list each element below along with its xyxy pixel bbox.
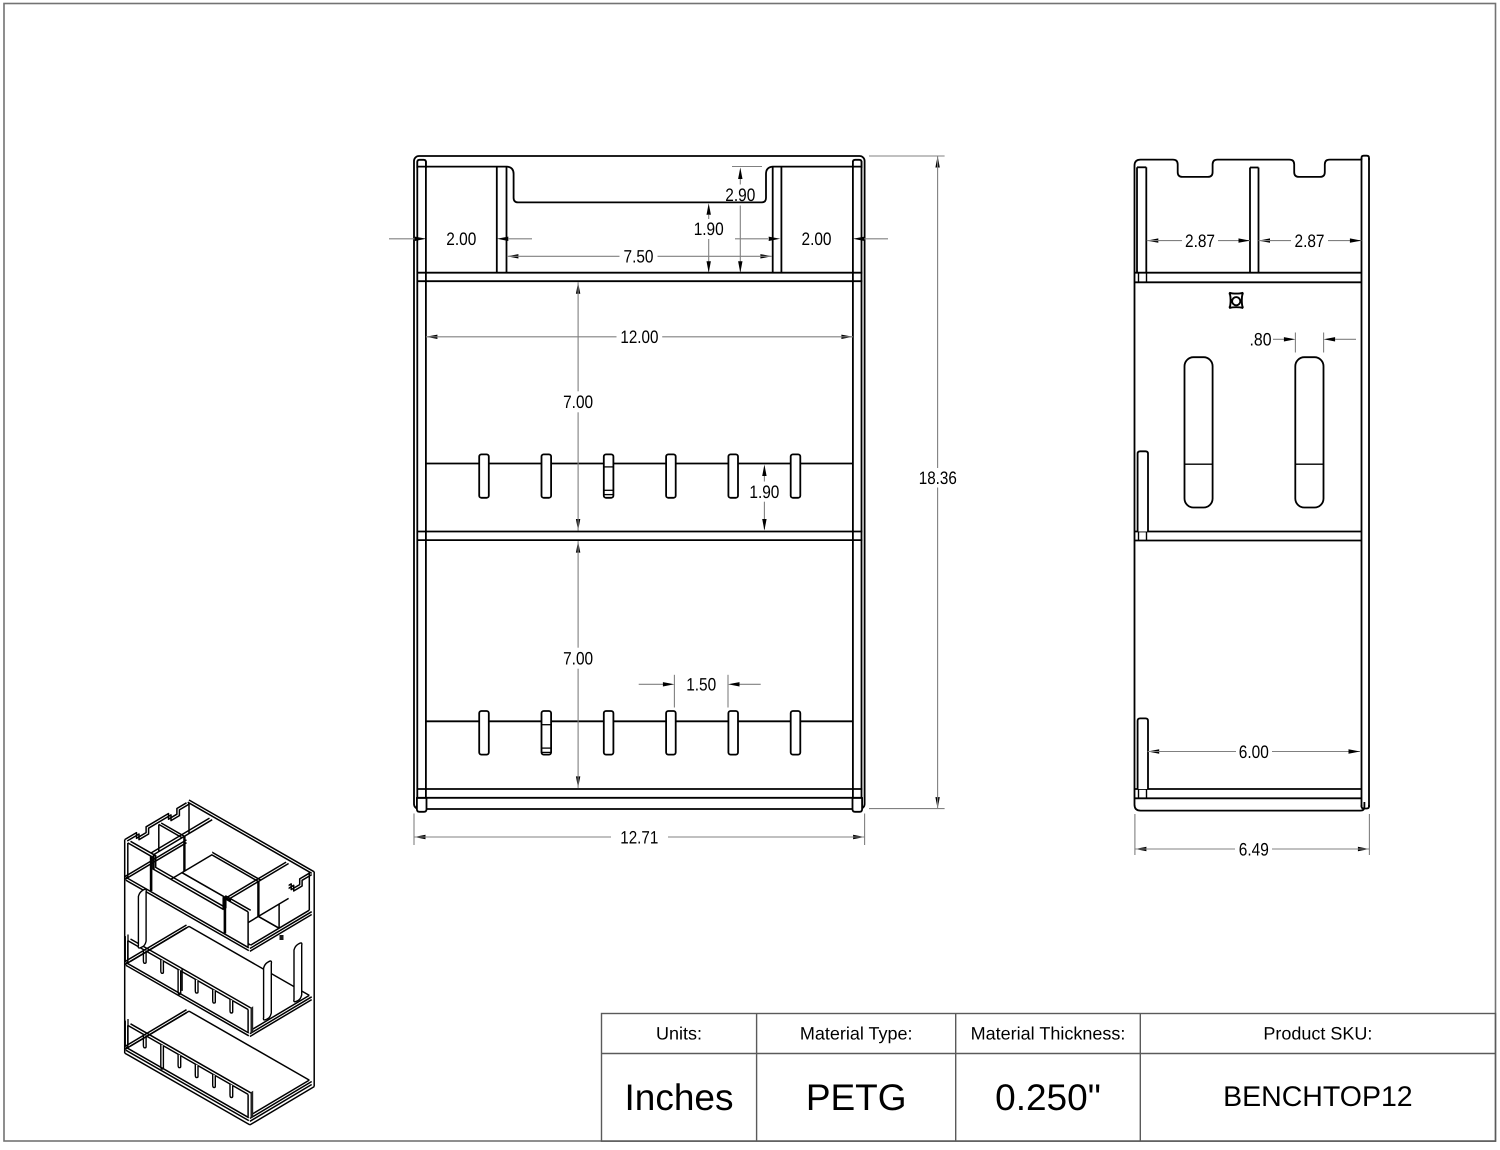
svg-text:Inches: Inches xyxy=(624,1077,733,1118)
svg-text:2.90: 2.90 xyxy=(725,185,755,205)
svg-text:7.00: 7.00 xyxy=(563,392,593,412)
svg-text:0.250": 0.250" xyxy=(995,1077,1101,1118)
svg-text:PETG: PETG xyxy=(806,1077,907,1118)
svg-text:Product SKU:: Product SKU: xyxy=(1263,1024,1372,1044)
svg-text:7.00: 7.00 xyxy=(563,648,593,668)
svg-text:Units:: Units: xyxy=(656,1024,702,1044)
svg-text:1.50: 1.50 xyxy=(686,675,716,695)
svg-text:2.00: 2.00 xyxy=(446,229,476,249)
svg-text:12.00: 12.00 xyxy=(620,327,658,347)
svg-text:12.71: 12.71 xyxy=(620,827,658,847)
svg-text:Material Thickness:: Material Thickness: xyxy=(971,1024,1126,1044)
svg-text:.80: .80 xyxy=(1250,330,1272,350)
svg-text:2.00: 2.00 xyxy=(802,229,832,249)
svg-text:2.87: 2.87 xyxy=(1185,231,1215,251)
svg-text:BENCHTOP12: BENCHTOP12 xyxy=(1223,1081,1413,1113)
svg-text:6.49: 6.49 xyxy=(1239,839,1269,859)
svg-text:1.90: 1.90 xyxy=(749,482,779,502)
svg-text:2.87: 2.87 xyxy=(1295,231,1325,251)
svg-text:7.50: 7.50 xyxy=(624,247,654,267)
svg-text:Material Type:: Material Type: xyxy=(800,1024,913,1044)
svg-text:6.00: 6.00 xyxy=(1239,742,1269,762)
svg-text:1.90: 1.90 xyxy=(694,219,724,239)
svg-text:18.36: 18.36 xyxy=(919,468,957,488)
